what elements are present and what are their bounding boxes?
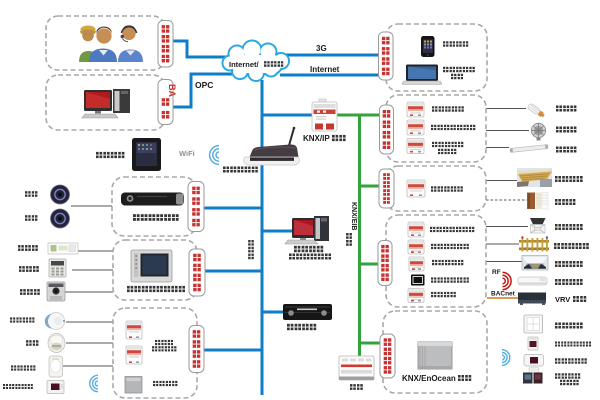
svg-text:Internet: Internet xyxy=(310,65,340,74)
svg-text:BACnet: BACnet xyxy=(491,291,516,298)
svg-text:VRV: VRV xyxy=(555,295,570,304)
svg-text:KNX/EIB: KNX/EIB xyxy=(350,202,357,230)
svg-text:Internet/: Internet/ xyxy=(229,60,260,69)
svg-text:3G: 3G xyxy=(316,44,327,53)
svg-text:RF: RF xyxy=(492,269,501,276)
svg-text:KNX/IP: KNX/IP xyxy=(303,134,330,143)
svg-text:BA: BA xyxy=(167,84,177,97)
svg-text:WiFi: WiFi xyxy=(179,149,195,158)
svg-text:OPC: OPC xyxy=(195,80,213,90)
svg-text:KNX/EnOcean: KNX/EnOcean xyxy=(402,374,456,383)
